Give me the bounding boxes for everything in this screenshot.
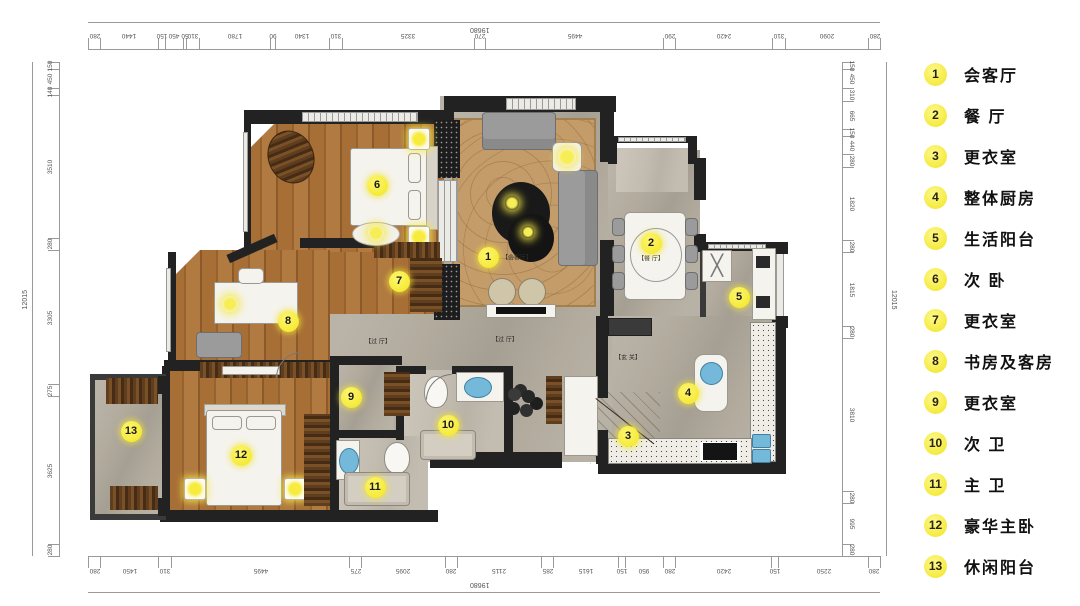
dim-segment: 280: [89, 38, 101, 50]
dim-segment: 280: [842, 241, 854, 253]
dim-segment: 150: [772, 556, 779, 568]
dim-total-line-bottom: [88, 592, 880, 593]
dim-value: 1820: [848, 197, 855, 211]
dim-segment: 280: [664, 556, 676, 568]
legend-item-10: 10次 卫: [924, 431, 1074, 455]
legend-label: 次 卫: [964, 431, 1006, 455]
dim-segment: 1340: [276, 38, 330, 50]
room-label: 【过 厅】: [365, 337, 391, 346]
dim-segment: 1440: [101, 38, 159, 50]
dim-value: 275: [47, 385, 54, 396]
dim-value: 2115: [492, 567, 506, 574]
room-marker-2: 2: [641, 233, 662, 254]
sink: [464, 377, 492, 398]
dim-segment: 275: [350, 556, 362, 568]
plant-box: [106, 378, 158, 404]
legend-badge: 1: [924, 63, 947, 86]
dim-value: 280: [47, 545, 54, 556]
dim-value: 280: [664, 567, 675, 574]
legend-label: 生活阳台: [964, 226, 1036, 250]
dim-value: 280: [848, 241, 855, 252]
dim-segment: 275: [48, 385, 60, 397]
dim-value: 310: [160, 567, 171, 574]
dim-value: 450: [47, 74, 54, 85]
dim-segment: 4495: [486, 38, 664, 50]
dim-segment: 290: [664, 38, 676, 50]
plan-shape: [776, 252, 784, 318]
dim-segment: 450: [842, 70, 854, 89]
dim-segment: 665: [842, 102, 854, 130]
legend-item-11: 11主 卫: [924, 472, 1074, 496]
study-sofa: [196, 332, 242, 358]
legend-badge: 9: [924, 391, 947, 414]
legend-label: 更衣室: [964, 390, 1018, 414]
dim-value: 280: [89, 567, 100, 574]
legend-badge: 10: [924, 432, 947, 455]
legend-item-12: 12豪华主卧: [924, 513, 1074, 537]
room-marker-13: 13: [121, 421, 142, 442]
dim-value: 950: [639, 567, 650, 574]
plan-shape: [158, 498, 170, 516]
pillow: [212, 416, 242, 430]
dim-value: 310: [330, 32, 341, 39]
dim-segment: 280: [842, 155, 854, 167]
room-label: 【过 厅】: [492, 335, 518, 344]
dim-value: 3625: [47, 463, 54, 477]
legend-badge: 6: [924, 268, 947, 291]
dim-segment: 310: [773, 38, 786, 50]
plan-shape: [284, 478, 306, 500]
dim-segment: 150: [842, 130, 854, 137]
dim-value: 280: [47, 239, 54, 250]
dimension-chain-bottom: 2801450310449527520952802115285161515095…: [88, 556, 881, 568]
plan-shape: [302, 112, 418, 122]
pillow: [408, 190, 421, 220]
legend-item-13: 13休闲阳台: [924, 554, 1074, 578]
legend-badge: 4: [924, 186, 947, 209]
dim-segment: 280: [48, 239, 60, 251]
dim-value: 280: [89, 32, 100, 39]
legend-item-3: 3更衣室: [924, 144, 1074, 168]
tv-console: [222, 366, 280, 375]
dim-value: 2090: [820, 32, 834, 39]
legend-label: 更衣室: [964, 144, 1018, 168]
plan-shape: [90, 514, 166, 520]
room-marker-11: 11: [365, 477, 386, 498]
dimension-chain-left: 150450140351028033052753625280: [48, 62, 60, 557]
dim-value: 450: [169, 32, 180, 39]
legend-badge: 11: [924, 473, 947, 496]
dim-segment: 280: [842, 327, 854, 339]
plan-shape: [504, 366, 513, 464]
plan-shape: [368, 225, 384, 241]
dim-value: 3810: [848, 408, 855, 422]
dim-segment: 4495: [172, 556, 350, 568]
legend-item-6: 6次 卧: [924, 267, 1074, 291]
dim-value: 1615: [579, 567, 593, 574]
legend-badge: 7: [924, 309, 947, 332]
dim-value: 280: [446, 567, 457, 574]
dim-value: 280: [848, 545, 855, 556]
dim-value: 310: [848, 90, 855, 101]
dim-value: 290: [664, 32, 675, 39]
legend-item-9: 9更衣室: [924, 390, 1074, 414]
dim-segment: 2420: [676, 38, 772, 50]
dim-segment: 3510: [48, 96, 60, 239]
dim-value: 310: [773, 32, 784, 39]
dim-value: 2420: [717, 567, 731, 574]
plan-shape: [438, 180, 458, 262]
room-marker-10: 10: [438, 415, 459, 436]
plan-shape: [184, 478, 206, 500]
dim-value: 3305: [47, 310, 54, 324]
dim-segment: 280: [842, 492, 854, 504]
dim-total-line-right: [886, 62, 887, 556]
legend-badge: 3: [924, 145, 947, 168]
dim-total-bottom: 19680: [470, 581, 489, 588]
dim-value: 450: [848, 74, 855, 85]
entry-door: [564, 376, 598, 456]
wardrobe: [304, 414, 330, 506]
dim-segment: 280: [48, 545, 60, 557]
dim-value: 280: [869, 32, 880, 39]
dim-total-left: 12015: [22, 290, 29, 309]
dimension-chain-top: 2801440150450503101780901340310332527044…: [88, 38, 881, 50]
island-sink: [700, 362, 723, 385]
dim-segment: 285: [542, 556, 554, 568]
dim-value: 150: [616, 567, 627, 574]
legend-item-1: 1会客厅: [924, 62, 1074, 86]
dim-segment: 2420: [676, 556, 772, 568]
floor-dining-bay: [616, 148, 688, 192]
dim-segment: 1820: [842, 168, 854, 242]
room-marker-3: 3: [618, 426, 639, 447]
dim-segment: 2095: [362, 556, 446, 568]
dim-segment: 150: [842, 63, 854, 70]
dim-value: 275: [350, 567, 361, 574]
dim-value: 270: [475, 32, 486, 39]
bed-headboard: [426, 146, 438, 230]
dim-value: 2250: [816, 567, 830, 574]
plan-shape: [520, 452, 562, 468]
dim-value: 310: [188, 32, 199, 39]
sofa-right: [558, 170, 598, 266]
dim-segment: 150: [159, 38, 166, 50]
dim-segment: 280: [89, 556, 101, 568]
room-marker-1: 1: [478, 247, 499, 268]
stool: [518, 278, 546, 306]
stool: [488, 278, 516, 306]
room-marker-9: 9: [341, 387, 362, 408]
plan-shape: [408, 128, 430, 150]
plan-shape: [334, 430, 396, 438]
closet: [410, 258, 442, 312]
legend-label: 豪华主卧: [964, 513, 1036, 537]
closet: [384, 372, 410, 416]
dim-value: 150: [770, 567, 781, 574]
plan-shape: [688, 136, 697, 164]
room-marker-5: 5: [729, 287, 750, 308]
dim-segment: 280: [446, 556, 458, 568]
plan-shape: [90, 378, 95, 516]
dim-value: 440: [848, 140, 855, 151]
dimension-chain-right: 1504503106651504402801820280181528038102…: [842, 62, 854, 557]
dim-value: 2420: [717, 32, 731, 39]
dim-value: 4495: [567, 32, 581, 39]
plan-shape: [330, 356, 402, 365]
legend-badge: 13: [924, 555, 947, 578]
legend-item-4: 4整体厨房: [924, 185, 1074, 209]
plan-shape: [618, 137, 686, 142]
dim-total-line-top: [88, 22, 880, 23]
plan-shape: [600, 110, 614, 162]
dim-segment: 140: [48, 89, 60, 96]
dining-chair: [612, 218, 625, 236]
dim-value: 4495: [254, 567, 268, 574]
legend-label: 整体厨房: [964, 185, 1036, 209]
fridge: [608, 318, 652, 336]
legend-item-2: 2餐 厅: [924, 103, 1074, 127]
plan-shape: [332, 510, 438, 522]
dim-segment: 3325: [343, 38, 475, 50]
legend-label: 休闲阳台: [964, 554, 1036, 578]
dim-segment: 1815: [842, 253, 854, 326]
legend-label: 更衣室: [964, 308, 1018, 332]
dim-value: 3325: [401, 32, 415, 39]
legend-item-7: 7更衣室: [924, 308, 1074, 332]
dim-value: 1815: [848, 282, 855, 296]
plant-box: [110, 486, 158, 510]
plan-shape: [522, 226, 534, 238]
legend: 1会客厅2餐 厅3更衣室4整体厨房5生活阳台6次 卧7更衣室8书房及客房9更衣室…: [924, 62, 1074, 595]
plan-shape: [506, 98, 576, 110]
tv-screen: [496, 307, 546, 314]
dim-segment: 2250: [779, 556, 869, 568]
dim-segment: 2090: [786, 38, 869, 50]
dim-segment: 3810: [842, 339, 854, 492]
dim-total-right: 12015: [890, 290, 897, 309]
dim-value: 280: [869, 567, 880, 574]
dim-segment: 1615: [554, 556, 619, 568]
washer: ╳: [702, 250, 732, 282]
dim-segment: 310: [159, 556, 172, 568]
dim-value: 3510: [47, 160, 54, 174]
dining-chair: [685, 272, 698, 290]
legend-badge: 2: [924, 104, 947, 127]
dim-segment: 450: [166, 38, 185, 50]
legend-badge: 12: [924, 514, 947, 537]
legend-badge: 8: [924, 350, 947, 373]
legend-label: 餐 厅: [964, 103, 1006, 127]
room-label: 【餐 厅】: [638, 254, 664, 263]
dim-segment: 1780: [200, 38, 271, 50]
dining-chair: [612, 272, 625, 290]
dim-value: 280: [848, 156, 855, 167]
legend-label: 主 卫: [964, 472, 1006, 496]
dim-segment: 280: [869, 38, 881, 50]
dim-value: 995: [848, 519, 855, 530]
room-marker-12: 12: [231, 445, 252, 466]
stove: [700, 442, 740, 461]
legend-item-5: 5生活阳台: [924, 226, 1074, 250]
dim-segment: 3305: [48, 251, 60, 385]
dim-value: 665: [848, 110, 855, 121]
dining-chair: [685, 218, 698, 236]
dim-segment: 270: [475, 38, 487, 50]
sink: [339, 448, 359, 474]
pillow: [408, 153, 421, 183]
room-label: 【玄 关】: [615, 353, 641, 362]
dining-chair: [612, 245, 625, 263]
pillow: [246, 416, 276, 430]
dim-value: 1780: [228, 32, 242, 39]
plan-shape: [222, 296, 238, 312]
plan-shape: [694, 158, 706, 200]
dim-value: 1340: [295, 32, 309, 39]
dim-segment: 950: [626, 556, 664, 568]
plan-shape: [505, 196, 519, 210]
dim-segment: 310: [187, 38, 200, 50]
dim-segment: 150: [619, 556, 626, 568]
dim-value: 280: [848, 492, 855, 503]
legend-label: 书房及客房: [964, 349, 1054, 373]
dim-segment: 995: [842, 504, 854, 545]
toilet: [384, 442, 410, 474]
room-marker-8: 8: [278, 311, 299, 332]
plan-shape: [243, 132, 248, 232]
kitchen-sink: [752, 434, 771, 448]
dim-segment: 280: [842, 545, 854, 557]
dim-segment: 310: [842, 89, 854, 102]
cabinet-detail: [756, 256, 770, 268]
dim-value: 2095: [396, 567, 410, 574]
dim-segment: 150: [48, 63, 60, 70]
dining-chair: [685, 245, 698, 263]
dim-segment: 2115: [458, 556, 542, 568]
legend-label: 次 卧: [964, 267, 1006, 291]
cabinet-detail: [756, 296, 770, 308]
dim-total-line-left: [32, 62, 33, 556]
dim-value: 1440: [122, 32, 136, 39]
dim-segment: 310: [330, 38, 343, 50]
room-marker-4: 4: [678, 383, 699, 404]
dim-value: 280: [848, 327, 855, 338]
plan-shape: [166, 268, 171, 352]
dim-value: 285: [542, 567, 553, 574]
kitchen-sink: [752, 449, 771, 463]
dim-segment: 280: [869, 556, 881, 568]
console-table: [546, 376, 562, 424]
desk-chair: [238, 268, 264, 284]
dim-segment: 1450: [101, 556, 159, 568]
plan-shape: [558, 148, 576, 166]
plan-shape: [160, 510, 340, 522]
floorplan-page: ╳ 12345678910111213 【会客厅】【餐 厅】【过 厅】【过 厅】…: [0, 0, 1080, 606]
dim-segment: 440: [842, 137, 854, 156]
sofa-top: [482, 112, 556, 150]
room-marker-7: 7: [389, 271, 410, 292]
dim-value: 1450: [122, 567, 136, 574]
legend-label: 会客厅: [964, 62, 1018, 86]
legend-badge: 5: [924, 227, 947, 250]
room-label: 【会客厅】: [502, 253, 532, 262]
plan-shape: [158, 376, 170, 394]
dim-segment: 3625: [48, 397, 60, 544]
legend-item-8: 8书房及客房: [924, 349, 1074, 373]
plant: [508, 388, 521, 401]
room-marker-6: 6: [367, 175, 388, 196]
